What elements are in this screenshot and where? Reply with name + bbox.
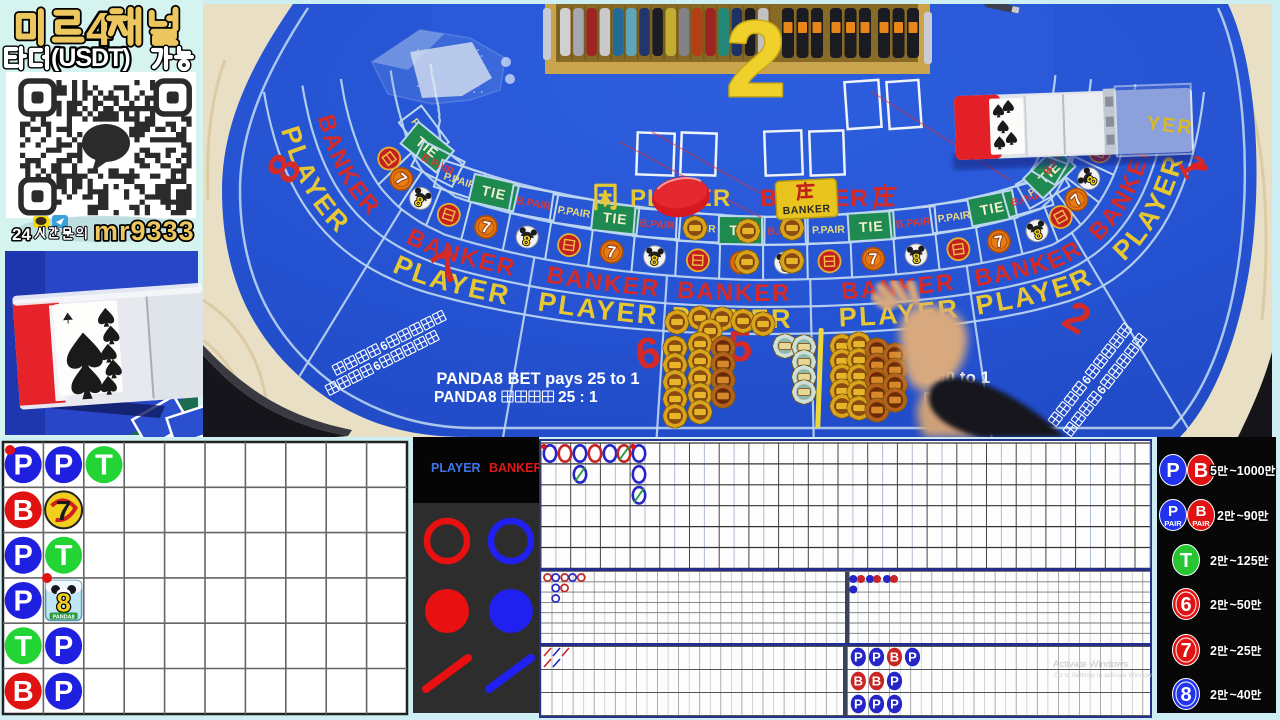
svg-text:P: P bbox=[854, 650, 863, 665]
svg-text:P: P bbox=[14, 450, 33, 482]
svg-text:2: 2 bbox=[1210, 644, 1217, 658]
svg-text:2: 2 bbox=[1210, 598, 1217, 612]
svg-text:PANDA8 BET pays 25 to 1: PANDA8 BET pays 25 to 1 bbox=[436, 370, 639, 388]
svg-text:7: 7 bbox=[868, 251, 878, 268]
svg-text:P: P bbox=[54, 450, 73, 482]
svg-text:P.PAIR: P.PAIR bbox=[812, 224, 846, 237]
svg-text:(USDT): (USDT) bbox=[51, 44, 130, 72]
svg-text:PANDA8: PANDA8 bbox=[52, 615, 74, 621]
svg-text:8: 8 bbox=[650, 253, 659, 269]
svg-text:~40: ~40 bbox=[1230, 688, 1251, 702]
svg-text:PAIR: PAIR bbox=[1192, 519, 1210, 528]
svg-text:BANKER: BANKER bbox=[489, 461, 539, 475]
svg-text:mr9333: mr9333 bbox=[94, 216, 195, 246]
svg-text:8: 8 bbox=[1180, 684, 1191, 706]
svg-text:B: B bbox=[13, 495, 34, 527]
svg-text:P: P bbox=[908, 650, 917, 665]
svg-text:P: P bbox=[54, 631, 73, 663]
svg-text:2: 2 bbox=[726, 4, 786, 119]
svg-text:B: B bbox=[1194, 460, 1208, 482]
svg-text:P: P bbox=[890, 674, 899, 689]
svg-text:~90: ~90 bbox=[1237, 509, 1258, 523]
svg-text:2: 2 bbox=[1217, 509, 1224, 523]
svg-text:B: B bbox=[13, 676, 34, 708]
svg-text:P: P bbox=[1166, 460, 1179, 482]
svg-text:7: 7 bbox=[56, 495, 72, 526]
svg-text:BANKER: BANKER bbox=[782, 203, 830, 217]
svg-text:P: P bbox=[1168, 503, 1178, 520]
svg-text:P: P bbox=[854, 697, 863, 712]
svg-text:B: B bbox=[872, 674, 881, 689]
svg-text:T: T bbox=[95, 450, 113, 482]
svg-text:Go to Settings to activate Win: Go to Settings to activate Windows. bbox=[1054, 672, 1152, 679]
svg-text:P: P bbox=[890, 697, 899, 712]
svg-text:24: 24 bbox=[12, 225, 31, 244]
svg-text:~50: ~50 bbox=[1230, 598, 1251, 612]
svg-text:TIE: TIE bbox=[602, 209, 628, 228]
svg-text:B: B bbox=[854, 674, 863, 689]
svg-text:~25: ~25 bbox=[1230, 644, 1251, 658]
svg-text:PAIR: PAIR bbox=[1164, 519, 1182, 528]
svg-text:B: B bbox=[1196, 503, 1207, 520]
svg-text:TIE: TIE bbox=[858, 218, 884, 235]
svg-text:25 : 1: 25 : 1 bbox=[558, 389, 598, 406]
svg-text:T: T bbox=[1180, 550, 1192, 572]
svg-text:B: B bbox=[890, 650, 899, 665]
svg-text:PLAYER: PLAYER bbox=[431, 461, 481, 475]
svg-text:T: T bbox=[14, 631, 32, 663]
svg-text:~1000: ~1000 bbox=[1230, 464, 1265, 478]
svg-text:~125: ~125 bbox=[1230, 554, 1258, 568]
svg-text:2: 2 bbox=[1210, 554, 1217, 568]
svg-text:P: P bbox=[14, 586, 33, 618]
svg-text:5: 5 bbox=[1210, 464, 1217, 478]
svg-text:7: 7 bbox=[1180, 640, 1191, 662]
svg-text:T: T bbox=[55, 540, 73, 572]
svg-text:P: P bbox=[872, 650, 881, 665]
svg-text:6: 6 bbox=[1180, 594, 1191, 616]
svg-text:PANDA8: PANDA8 bbox=[434, 389, 497, 406]
svg-text:2: 2 bbox=[1210, 688, 1217, 702]
svg-text:P: P bbox=[54, 676, 73, 708]
svg-text:P: P bbox=[872, 697, 881, 712]
svg-text:P: P bbox=[14, 540, 33, 572]
svg-text:BANKER: BANKER bbox=[676, 277, 791, 307]
svg-text:Activate Windows: Activate Windows bbox=[1053, 659, 1128, 670]
